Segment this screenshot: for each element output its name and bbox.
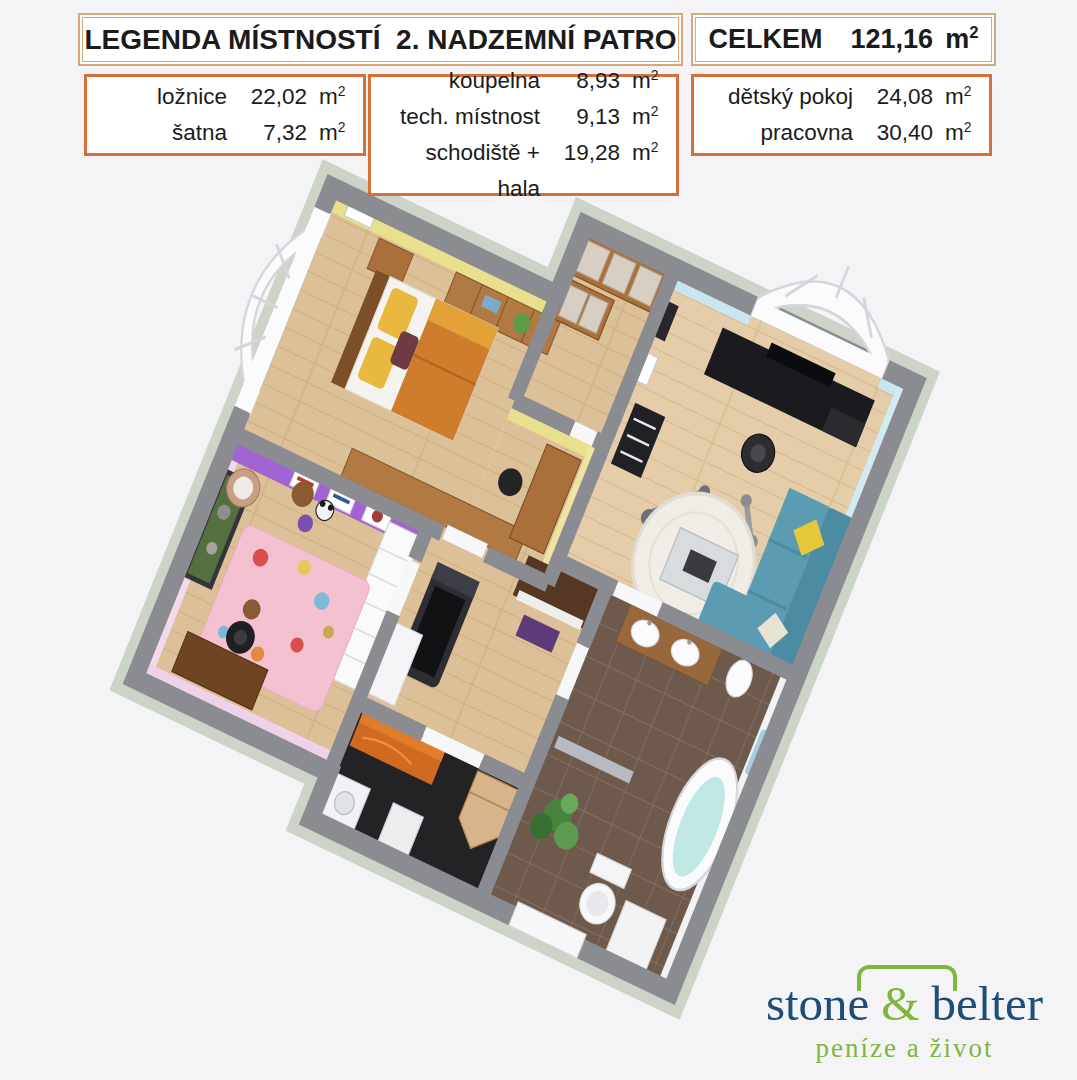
- total-unit: m2: [945, 24, 978, 55]
- area-unit: m2: [933, 79, 975, 115]
- legend-title: LEGENDA MÍSTNOSTÍ 2. NADZEMNÍ PATRO: [84, 24, 676, 56]
- room-area: 24,08: [859, 79, 933, 115]
- room-name: dětský pokoj: [704, 79, 859, 115]
- legend-row: tech. místnost9,13m2: [381, 99, 662, 135]
- room-area: 19,28: [546, 135, 620, 171]
- total-value: 121,16: [851, 24, 934, 55]
- floorplan-page: { "header": { "title": "LEGENDA MÍSTNOST…: [0, 0, 1077, 1080]
- total-label: CELKEM: [709, 24, 823, 55]
- room-name: šatna: [97, 115, 233, 151]
- room-name: ložnice: [97, 79, 233, 115]
- room-area: 8,93: [546, 63, 620, 99]
- logo-word1: stone: [766, 977, 869, 1031]
- legend-row: šatna7,32m2: [97, 115, 349, 151]
- room-area: 9,13: [546, 99, 620, 135]
- legend-row: koupelna8,93m2: [381, 63, 662, 99]
- area-unit: m2: [620, 63, 662, 99]
- company-logo: stone & belter peníze a život: [766, 977, 1043, 1064]
- legend-box-left: ložnice22,02m2šatna7,32m2: [84, 74, 366, 156]
- total-box: CELKEM 121,16 m2: [691, 13, 996, 66]
- legend-row: pracovna30,40m2: [704, 115, 975, 151]
- room-area: 7,32: [233, 115, 307, 151]
- room-name: tech. místnost: [381, 99, 546, 135]
- legend-title-box: LEGENDA MÍSTNOSTÍ 2. NADZEMNÍ PATRO: [78, 13, 683, 66]
- area-unit: m2: [307, 79, 349, 115]
- legend-row: ložnice22,02m2: [97, 79, 349, 115]
- legend-box-middle: koupelna8,93m2tech. místnost9,13m2schodi…: [368, 74, 679, 196]
- area-unit: m2: [933, 115, 975, 151]
- area-unit: m2: [307, 115, 349, 151]
- legend-row: schodiště + hala19,28m2: [381, 135, 662, 207]
- logo-tagline: peníze a život: [766, 1033, 1043, 1064]
- logo-bracket-icon: [857, 965, 956, 991]
- logo-wordmark: stone & belter: [766, 977, 1043, 1031]
- total-line: CELKEM 121,16 m2: [709, 24, 979, 55]
- area-unit: m2: [620, 135, 662, 171]
- room-area: 30,40: [859, 115, 933, 151]
- room-area: 22,02: [233, 79, 307, 115]
- room-name: schodiště + hala: [381, 135, 546, 207]
- room-name: koupelna: [381, 63, 546, 99]
- room-name: pracovna: [704, 115, 859, 151]
- area-unit: m2: [620, 99, 662, 135]
- legend-row: dětský pokoj24,08m2: [704, 79, 975, 115]
- legend-box-right: dětský pokoj24,08m2pracovna30,40m2: [691, 74, 992, 156]
